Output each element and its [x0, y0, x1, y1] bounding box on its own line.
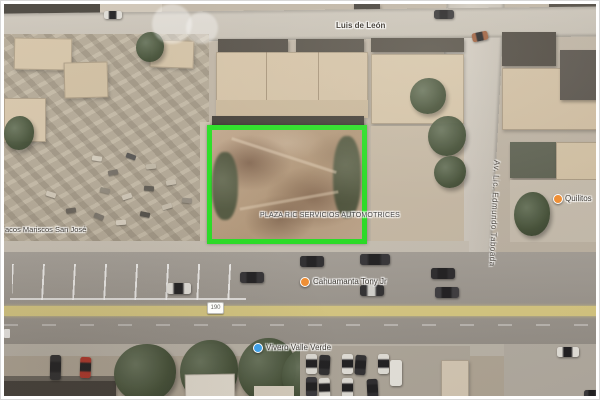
shrubs: [212, 152, 238, 220]
restaurant-poi-icon[interactable]: [553, 194, 563, 204]
junk-car: [144, 186, 154, 192]
car: [167, 283, 191, 294]
building-roof: [560, 50, 596, 100]
poi-label-right[interactable]: Quilitos: [565, 195, 592, 204]
car: [319, 378, 331, 396]
car: [342, 378, 353, 396]
car: [431, 268, 455, 279]
tree: [434, 156, 466, 188]
tree: [410, 78, 446, 114]
car: [354, 355, 366, 376]
car: [318, 355, 330, 376]
parcel-business-label[interactable]: PLAZA RIC SERVICIOS AUTOMOTRICES: [260, 212, 400, 220]
car: [366, 379, 378, 396]
car: [306, 377, 317, 396]
car: [435, 287, 459, 298]
satellite-map-canvas[interactable]: Luis de León Av. Lic. Edmundo Taboada 19…: [4, 4, 596, 396]
car: [434, 10, 454, 19]
building-roof: [218, 39, 288, 52]
poi-label-bottom[interactable]: Vivero Valle Verde: [266, 344, 331, 353]
car: [360, 254, 390, 265]
car: [378, 354, 389, 374]
restaurant-poi-icon[interactable]: [300, 277, 310, 287]
car: [342, 354, 353, 374]
stall-baseline: [10, 298, 246, 300]
car: [240, 272, 264, 283]
tree: [514, 192, 550, 236]
building-roof: [64, 61, 109, 98]
car: [306, 354, 317, 374]
van: [390, 360, 402, 386]
car: [104, 11, 122, 19]
poi-label-center[interactable]: Cahuamanta Tony Jr: [313, 278, 387, 287]
parking-stall-lines: [12, 264, 244, 300]
car: [50, 355, 61, 380]
route-overlay: [4, 306, 596, 316]
building-block: [556, 142, 596, 180]
building-roof-white: [185, 374, 235, 396]
junk-car: [182, 197, 192, 203]
building-roof-green: [510, 142, 556, 178]
poi-label-left[interactable]: acos Mariscos San José: [5, 226, 86, 234]
lane-dashes: [4, 324, 596, 326]
building-roof: [502, 32, 556, 66]
car: [584, 390, 596, 396]
building-roof: [296, 39, 364, 52]
parking-lot: [504, 344, 596, 396]
junk-car: [146, 163, 156, 169]
building-block: [441, 360, 469, 396]
building-roof: [4, 381, 116, 396]
building-roof: [371, 38, 464, 52]
route-shield-partial: [4, 329, 10, 338]
tree: [428, 116, 466, 156]
junk-car: [116, 220, 126, 226]
light-blob: [186, 12, 218, 44]
route-shield: 190: [207, 302, 224, 314]
tree: [4, 116, 34, 150]
street-label-top: Luis de León: [336, 22, 385, 31]
car: [300, 256, 324, 267]
car: [557, 347, 579, 357]
car: [80, 357, 92, 378]
store-poi-icon[interactable]: [253, 343, 263, 353]
screenshot-frame: Luis de León Av. Lic. Edmundo Taboada 19…: [0, 0, 600, 400]
tree: [114, 344, 176, 396]
building-roof: [254, 386, 294, 396]
shrubs: [333, 136, 361, 218]
